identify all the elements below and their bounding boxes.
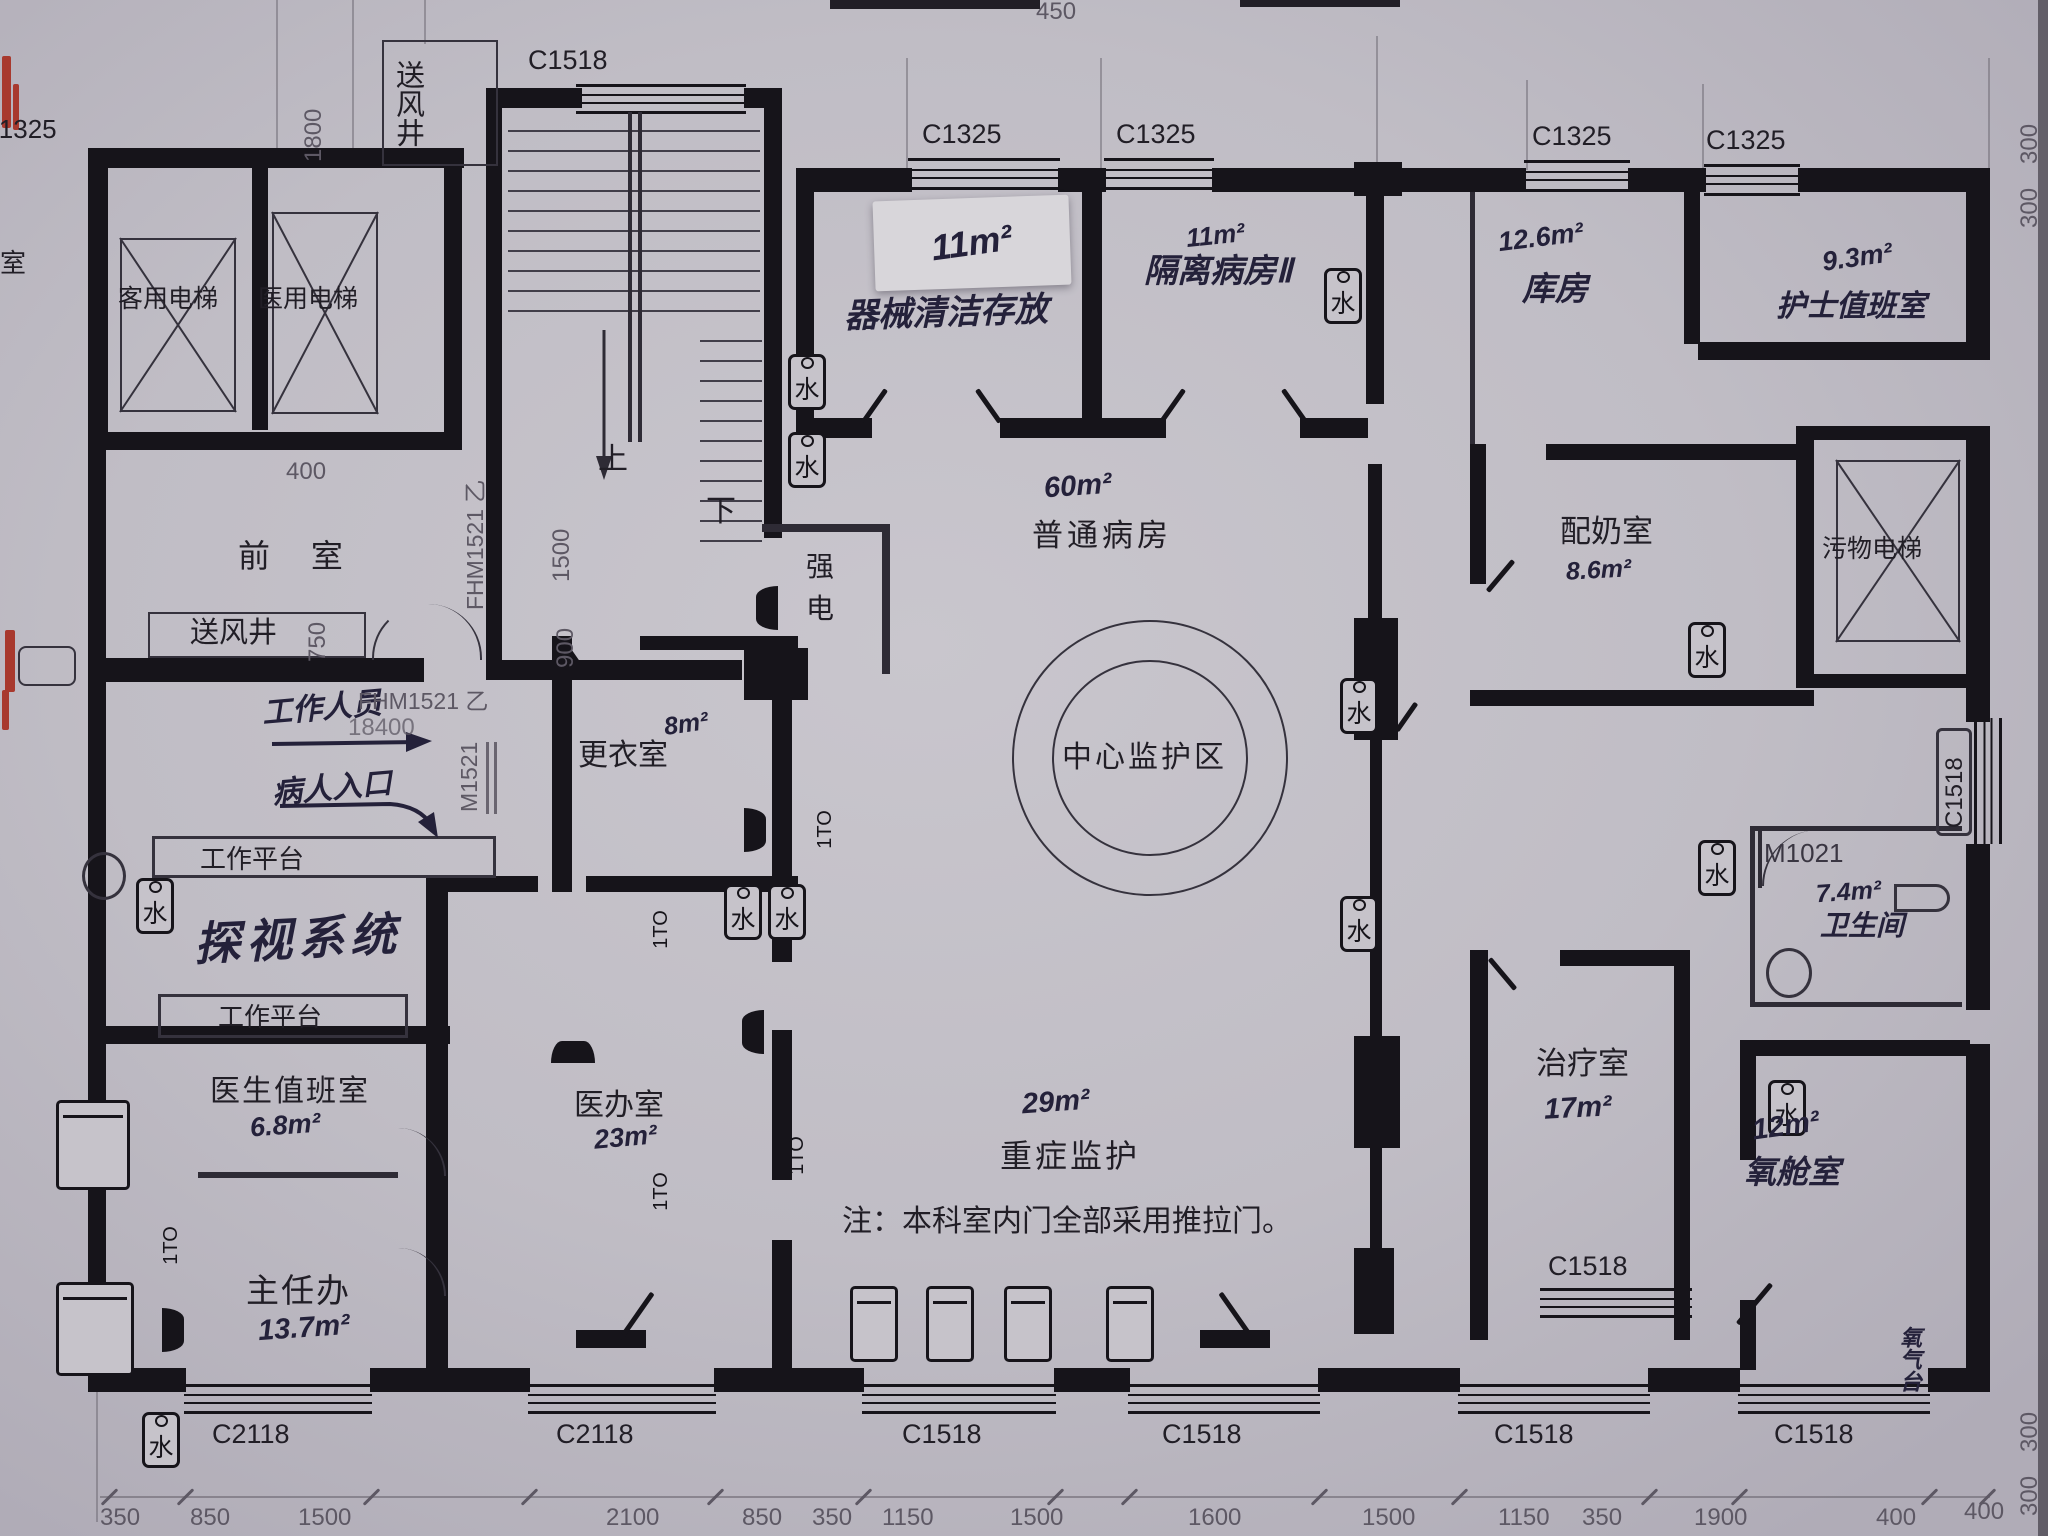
- dim-bottom: 850: [190, 1504, 230, 1532]
- window-tag-c1325: C1325: [922, 120, 1002, 148]
- dim-bottom: 350: [1582, 1504, 1622, 1532]
- window-tag-c2118: C2118: [212, 1420, 290, 1448]
- dim-bottom: 350: [100, 1504, 140, 1532]
- dim-1500: 1500: [548, 529, 576, 582]
- dim-bottom: 1900: [1694, 1504, 1747, 1532]
- window-tag-c1325-cut: C1325: [0, 116, 57, 143]
- dim-300: 300: [2016, 1412, 2044, 1452]
- door-tag-fhm1521-vert: FHM1521 乙: [456, 480, 490, 610]
- dim-bottom: 2100: [606, 1504, 659, 1532]
- dim-450: 450: [1036, 0, 1076, 26]
- dim-bottom: 1150: [882, 1504, 934, 1532]
- window-tag-c1518-right: C1518: [1942, 757, 1967, 828]
- dim-750: 750: [304, 622, 332, 662]
- window-tag-c1518: C1518: [1162, 1420, 1242, 1448]
- dim-bottom: 400: [1876, 1504, 1916, 1532]
- dim-bottom: 1500: [1362, 1504, 1415, 1532]
- door-tag-fhm1521: FHM1521 乙: [358, 682, 488, 716]
- window-tag-c2118: C2118: [556, 1420, 634, 1448]
- window-tag-c1518: C1518: [902, 1420, 982, 1448]
- window-tag-c1325: C1325: [1532, 122, 1612, 150]
- door-tag-m1521: M1521: [456, 742, 483, 812]
- dim-bottom: 1150: [1498, 1504, 1550, 1532]
- window-tag-c1518-treatment: C1518: [1548, 1252, 1628, 1280]
- dim-1800: 1800: [300, 109, 328, 162]
- window-tag-c1518: C1518: [1494, 1420, 1574, 1448]
- dim-bottom: 1500: [1010, 1504, 1063, 1532]
- dim-300: 300: [2016, 188, 2044, 228]
- dim-bottom: 1600: [1188, 1504, 1241, 1532]
- dim-bottom: 850: [742, 1504, 782, 1532]
- dim-300: 300: [2016, 124, 2044, 164]
- window-tag-c1518: C1518: [1774, 1420, 1854, 1448]
- window-tag-c1325: C1325: [1706, 126, 1786, 154]
- dim-900: 900: [552, 628, 580, 668]
- entry-arrows: [0, 0, 2048, 1536]
- floor-plan-photo: 水 水 水 水 水 水 水 水 水 水 水 水 1TO 1TO 1TO 1TO …: [0, 0, 2048, 1536]
- window-tag-c1325: C1325: [1116, 120, 1196, 148]
- dim-300: 300: [2016, 1476, 2044, 1516]
- dim-18400: 18400: [348, 714, 415, 742]
- dim-bottom: 350: [812, 1504, 852, 1532]
- window-tag-c1518-top: C1518: [528, 46, 608, 74]
- dim-400: 400: [286, 458, 326, 486]
- dim-bottom: 1500: [298, 1504, 351, 1532]
